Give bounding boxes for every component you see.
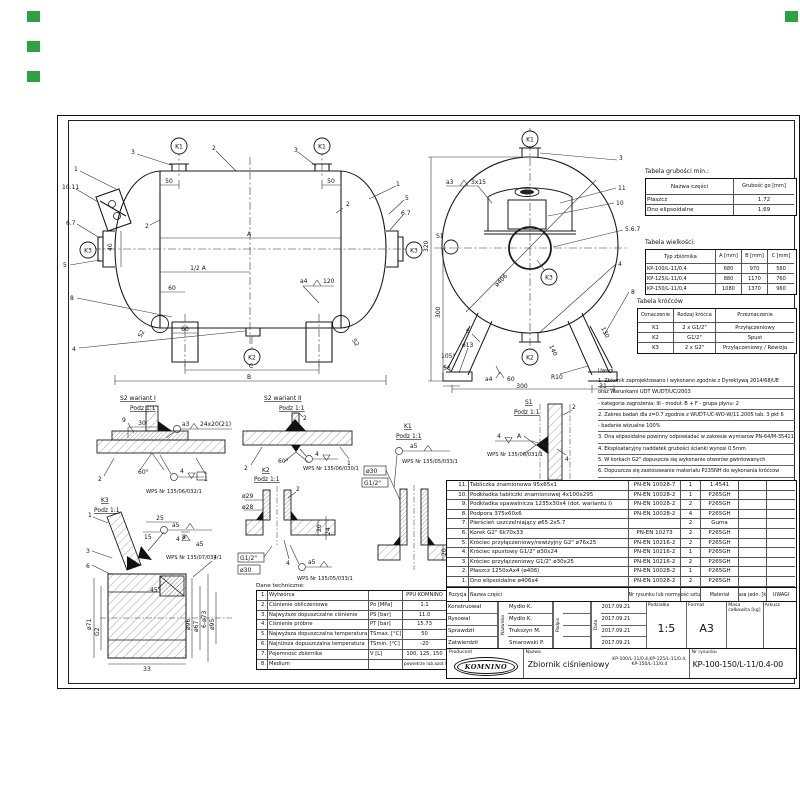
detail-subtitle: Podz 1:1 xyxy=(279,405,305,412)
role-label: Zatwierdził xyxy=(447,637,498,648)
cell: 2 x G2" xyxy=(674,343,716,353)
person-name: Smarowski P. xyxy=(508,637,553,648)
company-logo: KOMNINO xyxy=(454,657,518,676)
dim-label: ø71 xyxy=(86,619,93,630)
cell: Podpora 375x60x6 xyxy=(469,510,629,520)
cell xyxy=(767,577,795,587)
cell: Po [MPa] xyxy=(369,601,403,611)
dim-label: 140 xyxy=(547,344,558,358)
cell: PN-EN 10273 xyxy=(629,529,681,539)
bom-row: 3. Króciec przyłączeniowy G1/2" ø30x25 P… xyxy=(447,558,796,568)
cell: Korek G2" 6k70x33 xyxy=(469,529,629,539)
cell xyxy=(739,529,767,539)
role-label: Konstruował xyxy=(447,602,498,614)
cell: Króciec przyłączeniowy/rewizyjny G2" ø76… xyxy=(469,539,629,549)
cell: 100, 125, 150 xyxy=(403,650,446,660)
signature-cell xyxy=(563,637,590,648)
cell xyxy=(767,519,795,529)
hatch-area xyxy=(378,545,400,560)
side-view: K1 K1 K3 K3 K2 1 3 2 3 1 5 6.7 10.11 6.7… xyxy=(62,138,422,385)
data-row: 5. Najwyższa dopuszczalna temperatura TS… xyxy=(257,630,446,640)
cell: PPU KOMNINO xyxy=(403,591,446,601)
technical-data-table: 1. Wytwórca PPU KOMNINO 2. Ciśnienie obl… xyxy=(256,590,447,670)
cell: 1 xyxy=(681,567,701,577)
cell: Najwyższa dopuszczalna temperatura xyxy=(268,630,369,640)
col-header: Nazwa części xyxy=(646,179,734,195)
cell: 2 xyxy=(681,529,701,539)
dim-label: G2 xyxy=(94,627,101,636)
cell: P265GH xyxy=(701,510,739,520)
cell xyxy=(767,500,795,510)
cell: 960 xyxy=(768,284,794,294)
format-value: A3 xyxy=(687,608,726,648)
cell: 7. xyxy=(257,650,268,660)
dim-label: R10 xyxy=(551,374,563,381)
item-label: 10 xyxy=(616,200,624,207)
cell: 2 xyxy=(681,539,701,549)
dim-label: C xyxy=(249,363,253,370)
cell: Ciśnienie próbne xyxy=(268,620,369,630)
bom-row: 7. Pierścień uszczelniający ø65.2x5.7 2 … xyxy=(447,519,796,529)
sizes-table: Typ zbiornika A [mm] B [mm] C [mm] KP-10… xyxy=(645,249,797,295)
cell: 5. xyxy=(257,630,268,640)
technical-data-title: Dane techniczne: xyxy=(256,583,447,589)
cell: Wytwórca xyxy=(268,591,369,601)
dim-label: ø29 xyxy=(242,493,253,500)
cell: TSmax. [°C] xyxy=(369,630,403,640)
weld-label: 4 xyxy=(176,536,180,543)
col-header: Przeznaczenie xyxy=(716,309,794,323)
cell: Przyłączeniowy xyxy=(716,323,794,333)
title-block: Konstruował Rysował Sprawdził Zatwierdzi… xyxy=(446,601,797,679)
cell: Ciśnienie obliczeniowe xyxy=(268,601,369,611)
technical-data-block: Dane techniczne: 1. Wytwórca PPU KOMNINO… xyxy=(256,583,447,670)
hatch-area xyxy=(421,489,428,545)
cell: V [L] xyxy=(369,650,403,660)
dim-label: 2 xyxy=(346,201,350,208)
notes-title: Uwagi: xyxy=(598,366,795,376)
note-line: 3. Dna elipsoidalne powinny odpowiadać w… xyxy=(598,432,795,443)
weld-label: a3 xyxy=(182,421,190,428)
cell: G1/2" xyxy=(674,333,716,343)
cell: P265GH xyxy=(701,577,739,587)
title-block-upper: Konstruował Rysował Sprawdził Zatwierdzi… xyxy=(447,602,796,649)
dim-label: ø406 xyxy=(493,273,509,289)
cell: 2. xyxy=(257,601,268,611)
wps-label: WPS Nr 135/06/031/1 xyxy=(487,452,543,458)
signature-cell xyxy=(563,626,590,638)
cell: 1 xyxy=(681,481,701,491)
name-label: Nazwa xyxy=(526,650,541,655)
cell: 2 xyxy=(681,519,701,529)
format-cell: Format A3 xyxy=(687,602,727,648)
cell: 970 xyxy=(742,264,768,274)
note-line: 6. Dopuszcza się zastosowanie materiału … xyxy=(598,466,795,477)
name-cells: Mydło K. Mydło K. Trukszyn M. Smarowski … xyxy=(508,602,553,648)
cell: 1 xyxy=(681,491,701,501)
bom-row: 1. Dno elipsoidalne ø406x4 PN-EN 10028-2… xyxy=(447,577,796,587)
cell: 4. xyxy=(257,620,268,630)
weld-label: 4 xyxy=(497,433,501,440)
cell: P265GH xyxy=(701,491,739,501)
nozzles-table-title: Tabela króćców xyxy=(637,298,683,305)
dim-label: 60° xyxy=(278,458,289,465)
producer-label: Producent xyxy=(449,650,472,655)
nameplate-hole xyxy=(109,201,116,208)
cell: Króciec przyłączeniowy G1/2" ø30x25 xyxy=(469,558,629,568)
item-label: 2 xyxy=(98,476,102,483)
cell: Guma xyxy=(701,519,739,529)
signature-cell xyxy=(563,602,590,614)
cell: PS [bar] xyxy=(369,611,403,621)
cell: 4. xyxy=(447,548,469,558)
cell xyxy=(369,591,403,601)
col-header: Typ zbiornika xyxy=(646,250,716,264)
dim-label: 40 xyxy=(107,243,114,251)
dim-label: 45° xyxy=(150,587,161,594)
detail-s1: S1 Podz 1:1 4 A 2 4 WPS Nr 135/06/031/1 xyxy=(487,399,576,482)
wps-label: WPS Nr 135/07/034/1 xyxy=(166,555,222,561)
cell: P265GH xyxy=(701,558,739,568)
cell: 560 xyxy=(768,264,794,274)
cell: 2 xyxy=(681,577,701,587)
hatch-area xyxy=(284,490,291,520)
cell: PN-EN 10028-2 xyxy=(629,567,681,577)
drawing-number: KP-100-150/L-11/0.4-00 xyxy=(693,660,783,669)
cell: 880 xyxy=(716,274,742,284)
cell: 5. xyxy=(447,539,469,549)
dim-label: 105° xyxy=(441,353,455,360)
role-labels: Konstruował Rysował Sprawdził Zatwierdzi… xyxy=(447,602,498,648)
col-header: A [mm] xyxy=(716,250,742,264)
note-line: 1. Zbiornik zaprojektowano i wykonano zg… xyxy=(598,376,795,387)
cell: 2 x G1/2" xyxy=(674,323,716,333)
signature-column-header: Podpis xyxy=(553,602,563,648)
sizes-table-title: Tabela wielkości: xyxy=(645,239,695,246)
weld-label: 4 xyxy=(286,560,290,567)
item-label: 4 xyxy=(72,346,76,353)
cell: Tabliczka znamionowa 95x65x1 xyxy=(469,481,629,491)
item-label: 2 xyxy=(296,486,300,493)
data-row: 2. Ciśnienie obliczeniowe Po [MPa] 1.1 xyxy=(257,601,446,611)
item-label: 1 xyxy=(396,181,400,188)
cell: 11.0 xyxy=(403,611,446,621)
balloon-label: K1 xyxy=(175,144,183,151)
weld-label: a5 xyxy=(410,443,418,450)
dim-label: 60 xyxy=(181,326,189,333)
col-header: Rodzaj króćca xyxy=(674,309,716,323)
cell xyxy=(739,481,767,491)
note-line: - kategoria zagrożenia: III - moduł: B +… xyxy=(598,399,795,410)
cell: 8. xyxy=(447,510,469,520)
item-label: 2 xyxy=(244,465,248,472)
name-column-header: Nazwisko xyxy=(498,602,508,648)
cell: K2 xyxy=(638,333,674,343)
date-cells: 2017.09.21 2017.09.21 2017.09.21 2017.09… xyxy=(601,602,647,648)
signature-cells xyxy=(563,602,590,648)
cell: 8. xyxy=(257,660,268,670)
parts-list: 11. Tabliczka znamionowa 95x65x1 PN-EN 1… xyxy=(446,480,797,606)
bom-row: 5. Króciec przyłączeniowy/rewizyjny G2" … xyxy=(447,539,796,549)
cell xyxy=(767,567,795,577)
date-cell: 2017.09.21 xyxy=(601,626,647,638)
bom-row: 9. Podkładka spawalnicza 1235x30x4 (dot.… xyxy=(447,500,796,510)
item-label: 4 xyxy=(618,261,622,268)
cell: 1080 xyxy=(716,284,742,294)
hatch-area xyxy=(243,431,352,445)
date-cell: 2017.09.21 xyxy=(601,602,647,614)
dim-label: 2 xyxy=(303,415,307,422)
cell xyxy=(767,510,795,520)
dim-label: 20 xyxy=(316,524,323,532)
drawing-number-label: Nr rysunku xyxy=(692,650,717,655)
wps-label: WPS Nr 135/05/033/1 xyxy=(297,576,353,582)
balloon-label: K2 xyxy=(248,355,256,362)
dim-label: 300 xyxy=(435,306,442,318)
dim-label: G1/2" xyxy=(240,555,257,562)
cell: 15.73 xyxy=(403,620,446,630)
cell xyxy=(767,539,795,549)
item-label: 2 xyxy=(572,404,576,411)
cell: 10. xyxy=(447,491,469,501)
cell: Płaszcz 1250xAx4 (ø406) xyxy=(469,567,629,577)
cell xyxy=(767,548,795,558)
cell: K1 xyxy=(638,323,674,333)
sheet-value xyxy=(764,608,796,648)
weld-label: 4 xyxy=(315,451,319,458)
cell: PT [bar] xyxy=(369,620,403,630)
hatch-area xyxy=(263,490,270,520)
dim-label: 33 xyxy=(143,666,151,673)
detail-subtitle: Podz 1:1 xyxy=(514,409,540,416)
cell: Spust xyxy=(716,333,794,343)
cell xyxy=(739,510,767,520)
cell: 9. xyxy=(447,500,469,510)
drawing-title: Zbiornik ciśnieniowy xyxy=(528,660,610,669)
cell xyxy=(739,567,767,577)
weld-flag-circle xyxy=(171,474,178,481)
cell: KP-150/L-11/0,4 xyxy=(646,284,716,294)
sheet-cell: Arkusz xyxy=(764,602,796,648)
dim-label: 60 xyxy=(168,285,176,292)
cell: 1.72 xyxy=(734,195,794,205)
weld-fill xyxy=(158,421,172,431)
dim-label: 1/2 A xyxy=(190,265,207,272)
cell: P265GH xyxy=(701,548,739,558)
cell xyxy=(767,481,795,491)
dim-label: A xyxy=(247,231,252,238)
col-header: B [mm] xyxy=(742,250,768,264)
cell: 6. xyxy=(257,640,268,650)
dim-label: ø95 xyxy=(209,619,216,630)
cell xyxy=(739,500,767,510)
dim-label: 24 xyxy=(325,527,332,535)
item-label: 9 xyxy=(122,417,126,424)
data-row: 1. Wytwórca PPU KOMNINO xyxy=(257,591,446,601)
note-line: - badanie wizualne 100% xyxy=(598,421,795,432)
cell: P265GH xyxy=(701,567,739,577)
centerline-path xyxy=(434,128,628,365)
scale-cell: Podziałka 1:5 xyxy=(647,602,687,648)
bom-row: 11. Tabliczka znamionowa 95x65x1 PN-EN 1… xyxy=(447,481,796,491)
role-label: Sprawdził xyxy=(447,626,498,638)
dim-label: ø13 xyxy=(462,342,473,349)
cell: K3 xyxy=(638,343,674,353)
hatch-area xyxy=(107,512,141,570)
weld-label: a3 xyxy=(446,179,454,186)
dim-label: 8 xyxy=(182,534,186,541)
cell: Najwyższe dopuszczalne ciśnienie xyxy=(268,611,369,621)
balloon-label: K3 xyxy=(84,248,92,255)
item-label: 6.7 xyxy=(66,220,76,227)
cell: 2. xyxy=(447,567,469,577)
weld-label: S2 xyxy=(350,338,360,348)
cell: Króciec spustowy G1/2" ø30x24 xyxy=(469,548,629,558)
detail-subtitle: Podz 1:1 xyxy=(254,476,280,483)
item-label: 1 xyxy=(88,512,92,519)
weld-flag-circle xyxy=(299,564,306,571)
weld-label: 120 xyxy=(323,278,335,285)
weld-label: a4 xyxy=(300,278,308,285)
dim-label: 60° xyxy=(138,469,149,476)
weld-label: a5 xyxy=(196,541,204,548)
data-row: 6. Najniższa dopuszczalna temperatura TS… xyxy=(257,640,446,650)
cell: Dno elipsoidalne xyxy=(646,205,734,215)
dim-label: 320 xyxy=(423,240,430,252)
dim-label: 6-ø73 xyxy=(201,611,208,628)
cell: PN-EN 10028-2 xyxy=(629,491,681,501)
dim-label: ø30 xyxy=(240,567,251,574)
dim-label: 50 xyxy=(165,178,173,185)
person-name: Mydło K. xyxy=(508,614,553,626)
note-line: 2. Zakres badań dla z=0.7 zgodnie z WUDT… xyxy=(598,410,795,421)
cell: 1. xyxy=(257,591,268,601)
variant-line: KP-150/L-11/0.4 xyxy=(612,662,686,667)
cell: Podkładka spawalnicza 1235x30x4 (dot. wa… xyxy=(469,500,629,510)
weld-label: 4 xyxy=(180,468,184,475)
col-header: C [mm] xyxy=(768,250,794,264)
wps-label: WPS Nr 135/06/032/1 xyxy=(146,489,202,495)
balloon-label: K1 xyxy=(318,144,326,151)
cell: 2 xyxy=(681,500,701,510)
dim-label: 25 xyxy=(156,515,164,522)
cell: PN-EN 10216-2 xyxy=(629,548,681,558)
item-label: 4 xyxy=(565,456,569,463)
note-line: 5. W korkach G2" dopuszcza się wykonanie… xyxy=(598,455,795,466)
cell xyxy=(629,519,681,529)
cell xyxy=(767,558,795,568)
cell xyxy=(767,491,795,501)
cell: 1.4541 xyxy=(701,481,739,491)
col-header: Oznaczenie xyxy=(638,309,674,323)
cell: 1. xyxy=(447,577,469,587)
note-line: 4. Eksploatacyjny naddatek grubości ścia… xyxy=(598,444,795,455)
cell: 6. xyxy=(447,529,469,539)
detail-title: S2 wariant I xyxy=(120,395,156,402)
weld-flag-circle xyxy=(306,456,313,463)
dim-label: 30 xyxy=(138,420,146,427)
total-mass-label: Masa całkowita [kg] xyxy=(727,602,762,613)
drawing-number-cell: Nr rysunku KP-100-150/L-11/0.4-00 xyxy=(690,649,796,678)
cell: 4 xyxy=(681,510,701,520)
col-header: Grubość go [mm] xyxy=(734,179,794,195)
item-label: 6 xyxy=(86,563,90,570)
item-label: 6 xyxy=(466,328,470,335)
data-row: 4. Ciśnienie próbne PT [bar] 15.73 xyxy=(257,620,446,630)
cell: KP-125/L-11/0,4 xyxy=(646,274,716,284)
bom-row: 10. Podkładka tabliczki znamionowej 4x10… xyxy=(447,491,796,501)
cell: Pojemność zbiornika xyxy=(268,650,369,660)
company-logo-text: KOMNINO xyxy=(457,660,515,674)
bom-row: 8. Podpora 375x60x6 PN-EN 10028-2 4 P265… xyxy=(447,510,796,520)
thickness-table: Nazwa części Grubość go [mm] Płaszcz 1.7… xyxy=(645,178,797,216)
data-row: 3. Najwyższe dopuszczalne ciśnienie PS [… xyxy=(257,611,446,621)
weld-flag-circle xyxy=(396,448,403,455)
weld-label: a5 xyxy=(172,522,180,529)
cell: 11. xyxy=(447,481,469,491)
cell: 680 xyxy=(716,264,742,274)
item-label: 10.11 xyxy=(62,184,79,191)
cell: PN-EN 10028-2 xyxy=(629,500,681,510)
bom-row: 2. Płaszcz 1250xAx4 (ø406) PN-EN 10028-2… xyxy=(447,567,796,577)
hatch-area xyxy=(246,520,263,535)
dim-label: ø96 xyxy=(185,619,192,630)
weld-label: 24x20(21) xyxy=(200,421,231,428)
dim-path xyxy=(70,151,404,385)
dim-label: 50 xyxy=(327,178,335,185)
cell: KP-100/L-11/0,4 xyxy=(646,264,716,274)
cell: Pierścień uszczelniający ø65.2x5.7 xyxy=(469,519,629,529)
item-label: 3 xyxy=(619,155,623,162)
cell: Medium xyxy=(268,660,369,670)
balloon-label: K3 xyxy=(410,248,418,255)
item-label: 1 xyxy=(74,166,78,173)
dim-label: 300 xyxy=(516,383,528,390)
dim-label: 15 xyxy=(144,534,152,541)
thickness-table-title: Tabela grubości min.: xyxy=(645,168,709,175)
item-label: 5 xyxy=(405,195,409,202)
detail-k2: K2 Podz 1:1 ø29 ø28 2 20 24 G1/2" ø30 4 … xyxy=(238,467,353,582)
dim-label: B xyxy=(247,374,251,381)
person-name: Mydło K. xyxy=(508,602,553,614)
cell: 1.69 xyxy=(734,205,794,215)
cell xyxy=(739,548,767,558)
hatch-area xyxy=(400,489,407,545)
date-cell: 2017.09.21 xyxy=(601,614,647,626)
balloon-label: K1 xyxy=(526,137,534,144)
end-view: K1 K2 K3 3 11 10 5.6.7 4 8 6 a3 3x15 S1 … xyxy=(423,128,640,393)
detail-subtitle: Podz 1:1 xyxy=(94,507,120,514)
cell: Najniższa dopuszczalna temperatura xyxy=(268,640,369,650)
dim-label: 130 xyxy=(599,326,610,340)
data-row: 8. Medium powietrze lub azot lub argon xyxy=(257,660,446,670)
cell: 3. xyxy=(447,558,469,568)
cell: PN-EN 10216-2 xyxy=(629,539,681,549)
cell: powietrze lub azot lub argon xyxy=(403,660,446,670)
cell: 50 xyxy=(403,630,446,640)
date-column-header: Data xyxy=(591,602,601,648)
role-label: Rysował xyxy=(447,614,498,626)
detail-k3: K3 Podz 1:1 1 a5 4 a5 25 15 8 3 6 7 WPS … xyxy=(86,497,232,673)
cell xyxy=(739,491,767,501)
cell: P265GH xyxy=(701,529,739,539)
producer-cell: Producent KOMNINO xyxy=(447,649,524,678)
balloon-label: K2 xyxy=(526,355,534,362)
cell xyxy=(739,539,767,549)
dim-label: ø67 xyxy=(193,621,200,632)
cell: PN-EN 10216-2 xyxy=(629,558,681,568)
cell: 760 xyxy=(768,274,794,284)
